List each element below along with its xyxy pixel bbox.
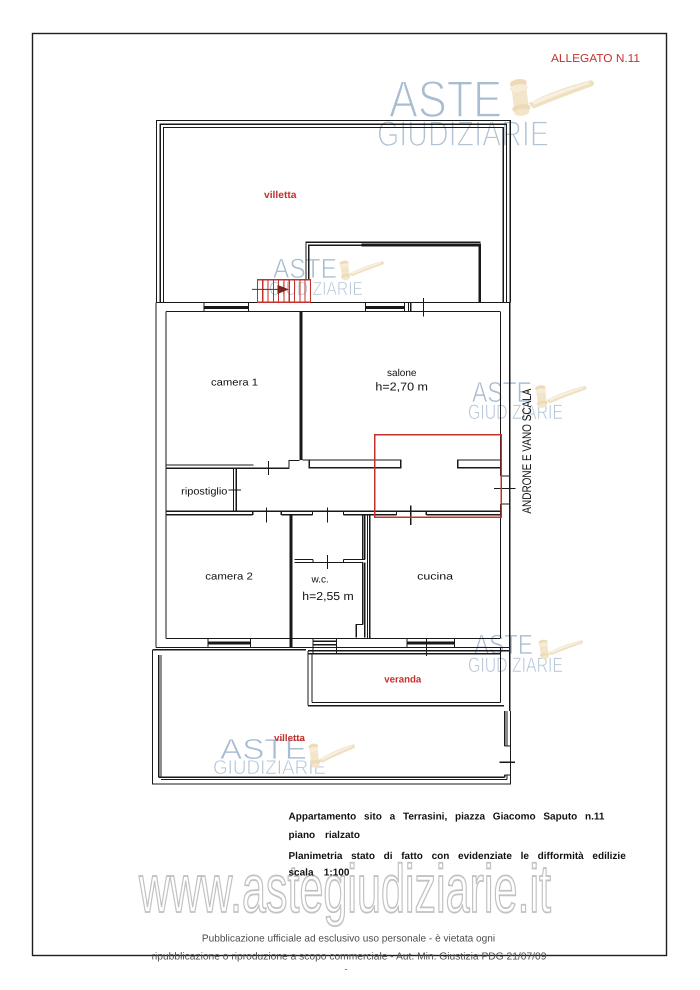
svg-text:w.c.: w.c. xyxy=(311,574,329,585)
svg-text:-: - xyxy=(344,964,347,975)
svg-text:cucina: cucina xyxy=(417,571,454,582)
svg-text:villetta: villetta xyxy=(264,190,297,201)
svg-text:h=2,55 m: h=2,55 m xyxy=(302,591,353,603)
svg-text:ripubblicazione o riproduzione: ripubblicazione o riproduzione a scopo c… xyxy=(152,952,547,963)
svg-text:ALLEGATO N.11: ALLEGATO N.11 xyxy=(551,53,640,65)
svg-text:GIUDIZIARIE: GIUDIZIARIE xyxy=(213,757,326,779)
svg-text:ANDRONE E VANO SCALA: ANDRONE E VANO SCALA xyxy=(520,388,534,514)
svg-text:GIUDIZIARIE: GIUDIZIARIE xyxy=(468,654,563,677)
svg-text:villetta: villetta xyxy=(274,733,306,744)
svg-text:veranda: veranda xyxy=(384,675,421,686)
svg-text:piano rialzato: piano rialzato xyxy=(289,830,360,841)
svg-text:www.astegiudiziarie.it: www.astegiudiziarie.it xyxy=(138,851,551,927)
svg-text:camera 1: camera 1 xyxy=(211,378,258,389)
svg-text:camera 2: camera 2 xyxy=(205,572,253,583)
svg-text:salone: salone xyxy=(387,368,417,379)
svg-text:Pubblicazione ufficiale ad esc: Pubblicazione ufficiale ad esclusivo uso… xyxy=(202,934,495,945)
svg-text:Planimetria stato di fatto con: Planimetria stato di fatto con evidenzia… xyxy=(289,851,627,862)
svg-text:h=2,70 m: h=2,70 m xyxy=(375,382,428,394)
svg-text:Appartamento sito a Terrasini,: Appartamento sito a Terrasini, piazza Gi… xyxy=(289,812,605,823)
svg-text:scala 1:100: scala 1:100 xyxy=(289,868,350,879)
svg-text:GIUDIZIARIE: GIUDIZIARIE xyxy=(377,113,549,154)
svg-text:GIUDIZIARIE: GIUDIZIARIE xyxy=(468,401,563,424)
svg-text:ripostiglio: ripostiglio xyxy=(181,486,228,497)
